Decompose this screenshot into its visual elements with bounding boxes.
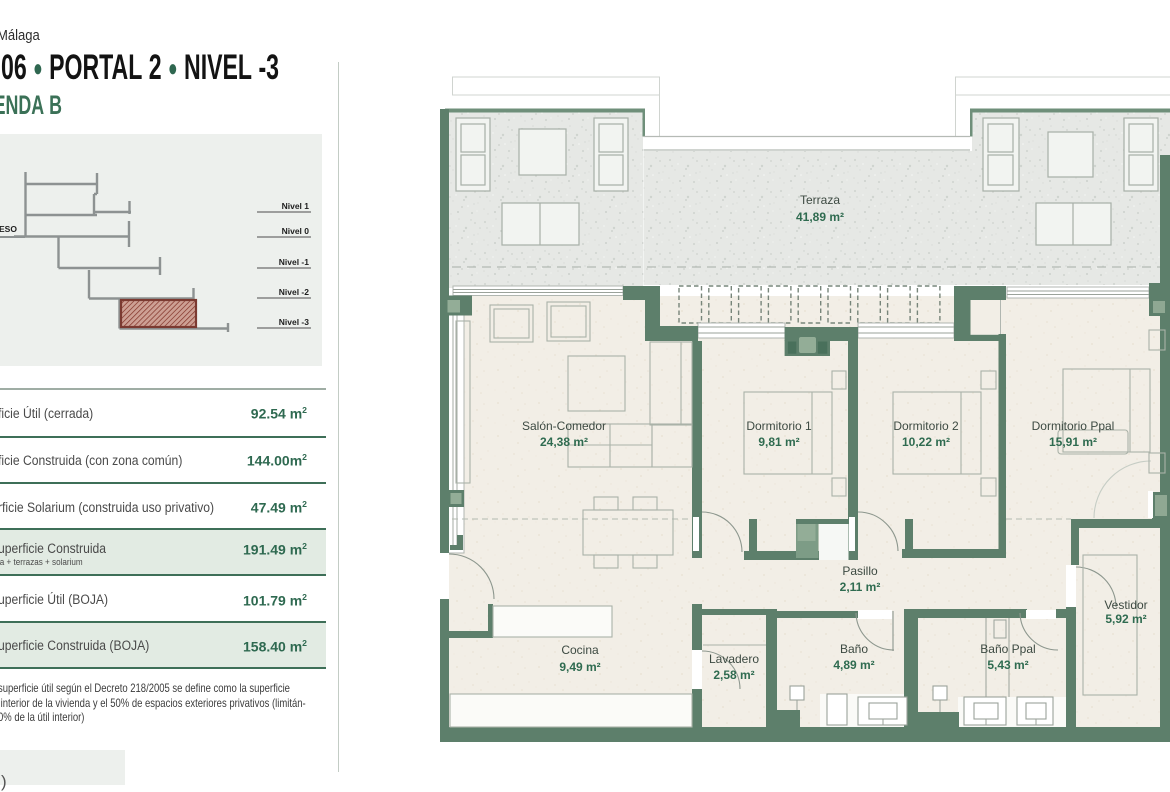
svg-text:Salón-Comedor: Salón-Comedor — [522, 419, 606, 433]
svg-text:Lavadero: Lavadero — [709, 652, 759, 666]
svg-text:5,43 m²: 5,43 m² — [987, 658, 1028, 672]
svg-text:Dormitorio 1: Dormitorio 1 — [746, 419, 812, 433]
svg-text:Nivel -2: Nivel -2 — [279, 287, 310, 297]
svg-text:2,58 m²: 2,58 m² — [713, 668, 754, 682]
svg-text:2,11 m²: 2,11 m² — [840, 580, 881, 594]
svg-text:Cocina: Cocina — [561, 643, 599, 657]
svg-text:15,91 m²: 15,91 m² — [1049, 435, 1097, 449]
svg-text:9,81 m²: 9,81 m² — [758, 435, 799, 449]
svg-text:24,38 m²: 24,38 m² — [540, 435, 588, 449]
svg-text:Pasillo: Pasillo — [842, 564, 878, 578]
svg-text:Dormitorio 2: Dormitorio 2 — [893, 419, 959, 433]
svg-text:Nivel 0: Nivel 0 — [282, 226, 310, 236]
svg-text:Vestidor: Vestidor — [1104, 598, 1147, 612]
svg-text:41,89 m²: 41,89 m² — [796, 210, 844, 224]
svg-text:Baño Ppal: Baño Ppal — [980, 642, 1035, 656]
svg-text:Baño: Baño — [840, 642, 868, 656]
svg-text:4,89 m²: 4,89 m² — [833, 658, 874, 672]
svg-text:10,22 m²: 10,22 m² — [902, 435, 950, 449]
svg-text:9,49 m²: 9,49 m² — [559, 660, 600, 674]
svg-text:Nivel -3: Nivel -3 — [279, 317, 310, 327]
svg-text:Terraza: Terraza — [800, 193, 840, 207]
svg-text:ESO: ESO — [0, 224, 17, 234]
svg-text:5,92 m²: 5,92 m² — [1105, 612, 1146, 626]
svg-text:Dormitorio Ppal: Dormitorio Ppal — [1032, 419, 1115, 433]
svg-text:Nivel 1: Nivel 1 — [282, 201, 310, 211]
svg-text:Nivel -1: Nivel -1 — [279, 257, 310, 267]
